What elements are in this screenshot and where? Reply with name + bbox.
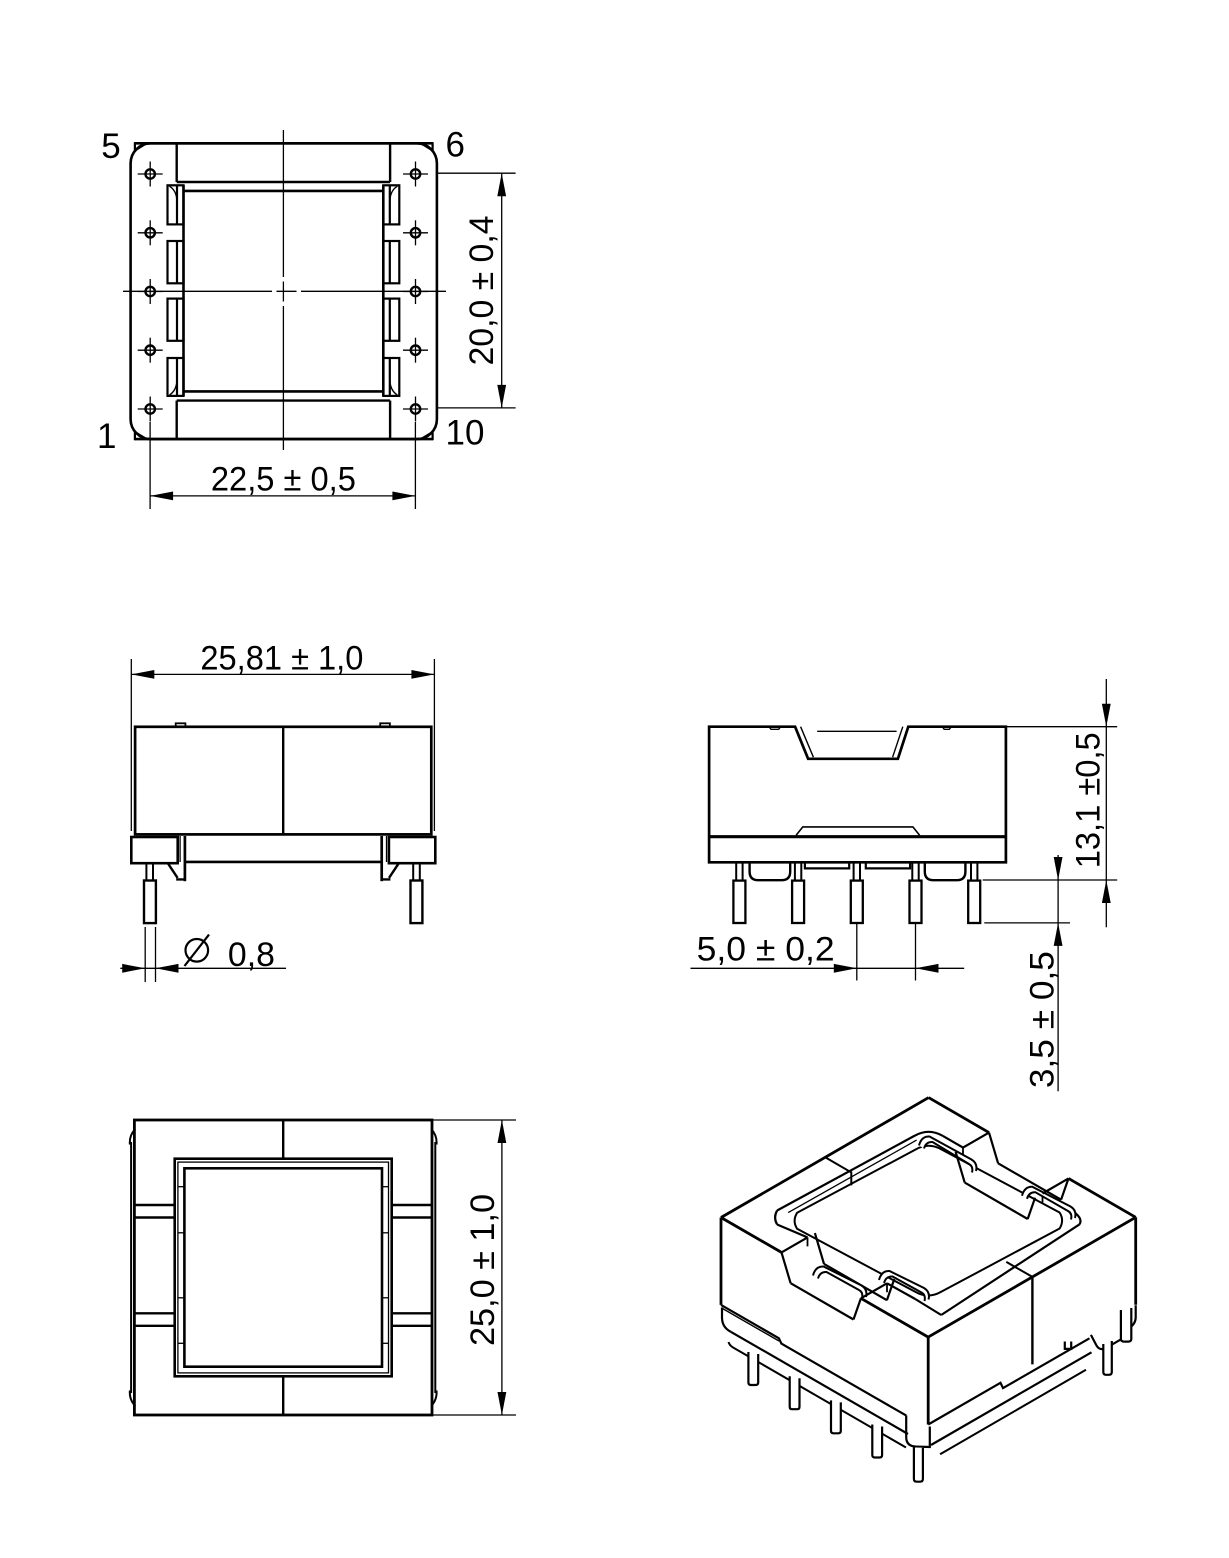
svg-text:5,0 ± 0,2: 5,0 ± 0,2 <box>697 931 835 969</box>
svg-text:1: 1 <box>97 417 116 456</box>
svg-text:0,8: 0,8 <box>228 936 275 974</box>
svg-text:5: 5 <box>101 127 120 166</box>
svg-text:13,1 ±0,5: 13,1 ±0,5 <box>1070 732 1108 868</box>
svg-text:25,0 ± 1,0: 25,0 ± 1,0 <box>464 1194 502 1346</box>
svg-text:25,81 ± 1,0: 25,81 ± 1,0 <box>200 639 363 677</box>
svg-text:22,5 ± 0,5: 22,5 ± 0,5 <box>211 460 356 498</box>
svg-text:6: 6 <box>446 125 465 164</box>
svg-text:20,0 ± 0,4: 20,0 ± 0,4 <box>463 216 501 366</box>
svg-text:10: 10 <box>446 414 485 453</box>
svg-text:3,5 ± 0,5: 3,5 ± 0,5 <box>1024 951 1062 1088</box>
